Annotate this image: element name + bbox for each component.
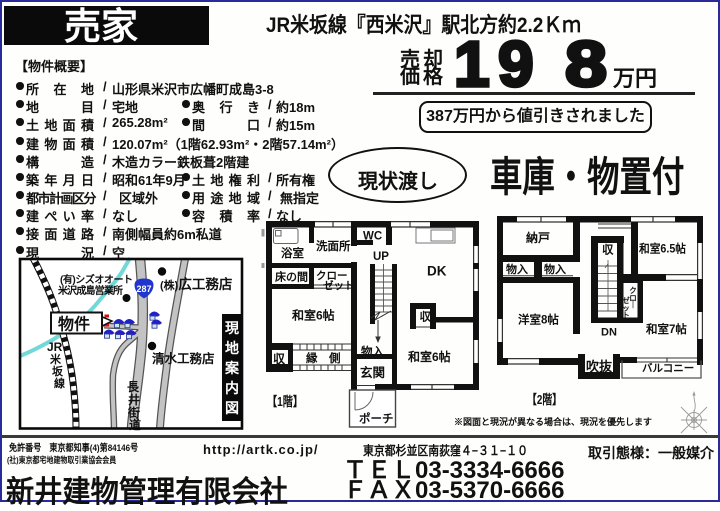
- svg-text:UP: UP: [373, 251, 389, 263]
- svg-text:案: 案: [224, 360, 240, 376]
- svg-text:物入: 物入: [361, 345, 384, 359]
- svg-text:浴室: 浴室: [281, 246, 304, 260]
- svg-text:ゼット: ゼット: [323, 279, 355, 292]
- svg-text:(有)シズオオート: (有)シズオオート: [60, 273, 133, 286]
- svg-text:洋室8帖: 洋室8帖: [518, 313, 559, 327]
- svg-text:床の間: 床の間: [275, 270, 308, 284]
- svg-text:和室6帖: 和室6帖: [291, 308, 335, 323]
- svg-text:【1階】: 【1階】: [267, 394, 303, 409]
- svg-text:バルコニー: バルコニー: [642, 363, 694, 375]
- svg-text:坂: 坂: [52, 364, 64, 378]
- svg-text:玄関: 玄関: [360, 365, 385, 380]
- svg-text:【2階】: 【2階】: [527, 392, 562, 407]
- svg-text:和室6.5帖: 和室6.5帖: [639, 242, 686, 256]
- svg-text:図: 図: [225, 400, 239, 416]
- svg-text:現: 現: [225, 320, 239, 336]
- svg-text:和室7帖: 和室7帖: [646, 322, 687, 336]
- svg-text:長: 長: [127, 379, 140, 394]
- svg-text:287: 287: [136, 284, 151, 294]
- svg-text:井: 井: [128, 392, 140, 407]
- svg-text:収: 収: [420, 311, 432, 324]
- svg-text:縁 側: 縁 側: [306, 351, 341, 365]
- svg-text:清水工務店: 清水工務店: [152, 351, 215, 366]
- svg-text:DK: DK: [427, 264, 447, 279]
- svg-text:物入: 物入: [544, 262, 566, 276]
- svg-text:線: 線: [54, 376, 65, 390]
- svg-text:ポーチ: ポーチ: [359, 412, 394, 426]
- svg-text:JR: JR: [47, 340, 63, 354]
- svg-text:和室6帖: 和室6帖: [407, 349, 451, 364]
- svg-text:吹抜: 吹抜: [586, 359, 613, 374]
- svg-text:｜: ｜: [629, 299, 637, 309]
- svg-text:物件: 物件: [58, 315, 90, 334]
- svg-text:米沢成島営業所: 米沢成島営業所: [58, 284, 123, 297]
- svg-text:WC: WC: [363, 231, 382, 243]
- svg-text:内: 内: [225, 380, 239, 396]
- svg-text:地: 地: [225, 340, 239, 356]
- svg-text:物入: 物入: [506, 262, 528, 276]
- svg-text:収: 収: [273, 352, 286, 366]
- svg-text:収: 収: [602, 244, 614, 257]
- svg-text:ト: ト: [622, 311, 630, 320]
- svg-text:米: 米: [49, 352, 62, 366]
- svg-text:納戸: 納戸: [526, 230, 550, 245]
- svg-text:DN: DN: [601, 327, 617, 339]
- svg-text:洗面所: 洗面所: [316, 239, 351, 253]
